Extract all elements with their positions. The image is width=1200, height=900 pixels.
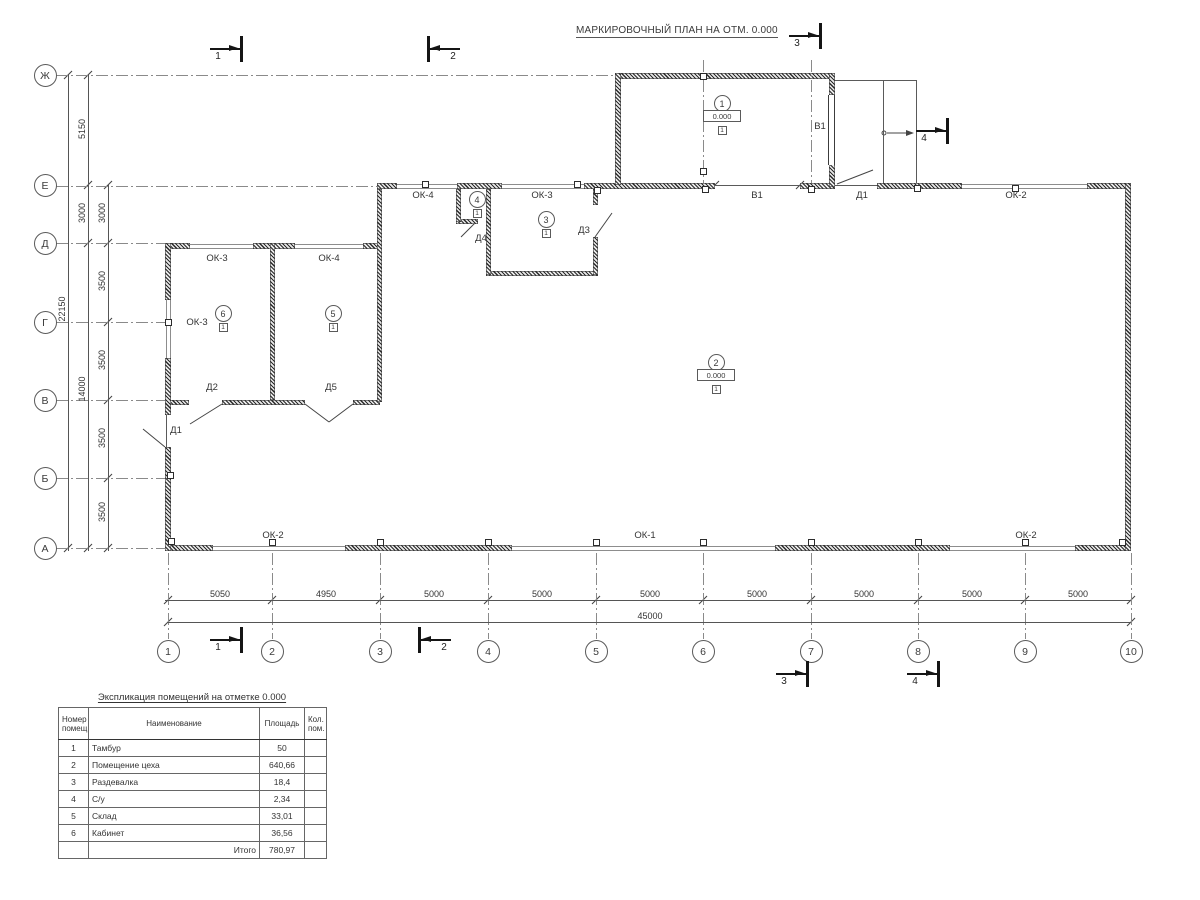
plan-label: В1: [729, 190, 785, 201]
column-symbol: [808, 539, 815, 546]
dimension-text: 5000: [727, 589, 787, 599]
dimension-text: 5150: [77, 99, 87, 159]
plan-label: Д2: [184, 382, 240, 393]
column-symbol: [593, 539, 600, 546]
axis-bubble-col: 6: [692, 640, 715, 663]
window-symbol: [502, 184, 584, 189]
section-marker-arrow: [229, 636, 238, 642]
legend-header-row: Номер помещ. Наименование Площадь Кол. п…: [59, 708, 327, 740]
column-symbol: [422, 181, 429, 188]
axis-bubble-col: 3: [369, 640, 392, 663]
section-marker-arrow: [422, 636, 431, 642]
section-marker-arrow: [808, 32, 817, 38]
axis-gridline: [1025, 553, 1026, 639]
wall-segment: [486, 271, 598, 276]
room-legend: Экспликация помещений на отметке 0.000 Н…: [58, 692, 326, 859]
wall-segment: [377, 189, 382, 402]
axis-gridline: [380, 553, 381, 639]
column-symbol: [700, 539, 707, 546]
axis-bubble-col: 8: [907, 640, 930, 663]
section-marker-arrow: [926, 670, 935, 676]
section-marker-number: 2: [442, 51, 464, 62]
section-marker-bar: [240, 627, 243, 653]
door-leaf: [837, 170, 873, 184]
dimension-line: [68, 75, 69, 551]
section-marker-number: 1: [207, 642, 229, 653]
column-symbol: [168, 538, 175, 545]
room-name-cell: Склад: [89, 808, 260, 825]
axis-gridline: [56, 322, 165, 323]
axis-bubble-col: 1: [157, 640, 180, 663]
wall-segment: [165, 358, 171, 415]
dimension-text: 3500: [97, 251, 107, 311]
dimension-line: [165, 600, 1131, 601]
drawing-element: Номер помещ. Наименование Площадь Кол. п…: [59, 708, 327, 740]
axis-gridline: [56, 400, 165, 401]
axis-bubble-col: 2: [261, 640, 284, 663]
window-symbol: [950, 546, 1075, 551]
axis-bubble-row: Е: [34, 174, 57, 197]
dimension-text: 4950: [296, 589, 356, 599]
room-number-cell: 4: [59, 791, 89, 808]
floor-type-mark: 1: [718, 126, 727, 135]
dimension-text: 5000: [512, 589, 572, 599]
wall-segment: [270, 243, 275, 400]
plan-label: Д3: [556, 225, 612, 236]
room-number-cell: 5: [59, 808, 89, 825]
dimension-text: 22150: [57, 279, 67, 339]
wall-segment: [457, 183, 502, 189]
opening-line: [883, 80, 884, 183]
wall-segment: [345, 545, 512, 551]
room-area-cell: 36,56: [260, 825, 305, 842]
legend-row: 6Кабинет36,56: [59, 825, 327, 842]
column-symbol: [808, 186, 815, 193]
dimension-text: 5050: [190, 589, 250, 599]
axis-bubble-col: 5: [585, 640, 608, 663]
column-symbol: [700, 73, 707, 80]
room-area-cell: 2,34: [260, 791, 305, 808]
wall-segment: [353, 400, 380, 405]
plan-label: Д1: [834, 190, 890, 201]
wall-segment: [1125, 183, 1131, 551]
wall-segment: [165, 545, 213, 551]
plan-label: ОК-2: [998, 530, 1054, 541]
axis-gridline: [272, 553, 273, 639]
total-empty-cell: [59, 842, 89, 859]
opening-line: [835, 80, 917, 81]
axis-gridline: [488, 553, 489, 639]
axis-gridline: [703, 553, 704, 639]
section-marker-number: 3: [786, 38, 808, 49]
section-marker-number: 2: [433, 642, 455, 653]
section-marker-number: 4: [904, 676, 926, 687]
col-header-area: Площадь: [260, 708, 305, 740]
dimension-line: [168, 622, 1131, 623]
room-number-bubble: 4: [469, 191, 486, 208]
axis-bubble-row: А: [34, 537, 57, 560]
wall-segment: [593, 237, 598, 275]
room-count-cell: [305, 757, 327, 774]
section-marker-arrow: [431, 45, 440, 51]
plan-label: ОК-1: [617, 530, 673, 541]
axis-bubble-col: 4: [477, 640, 500, 663]
window-symbol: [166, 300, 171, 358]
wall-segment: [486, 189, 491, 275]
total-count-cell: [305, 842, 327, 859]
elevation-mark: 0.000: [703, 110, 741, 122]
floor-type-mark: 1: [542, 229, 551, 238]
total-value-cell: 780,97: [260, 842, 305, 859]
room-number-bubble: 5: [325, 305, 342, 322]
dimension-text: 3000: [97, 183, 107, 243]
room-number-bubble: 3: [538, 211, 555, 228]
opening-line: [916, 80, 917, 183]
section-marker-arrow: [229, 45, 238, 51]
window-symbol: [295, 244, 363, 249]
wall-segment: [829, 163, 835, 187]
wall-segment: [775, 545, 950, 551]
wall-segment: [615, 73, 835, 79]
window-symbol: [213, 546, 345, 551]
column-symbol: [700, 168, 707, 175]
col-header-name: Наименование: [89, 708, 260, 740]
axis-bubble-row: Б: [34, 467, 57, 490]
wall-segment: [829, 73, 835, 95]
axis-bubble-row: Г: [34, 311, 57, 334]
room-number-cell: 2: [59, 757, 89, 774]
door-leaf: [305, 404, 329, 422]
column-symbol: [574, 181, 581, 188]
room-count-cell: [305, 774, 327, 791]
dimension-text: 5000: [404, 589, 464, 599]
legend-total-row: Итого780,97: [59, 842, 327, 859]
wall-segment: [584, 183, 715, 189]
plan-label: ОК-2: [245, 530, 301, 541]
axis-gridline: [56, 243, 165, 244]
room-count-cell: [305, 808, 327, 825]
room-name-cell: С/у: [89, 791, 260, 808]
room-name-cell: Раздевалка: [89, 774, 260, 791]
wall-segment: [456, 189, 461, 222]
room-name-cell: Тамбур: [89, 740, 260, 757]
axis-gridline: [56, 75, 615, 76]
column-symbol: [485, 539, 492, 546]
plan-label: ОК-4: [301, 253, 357, 264]
drawing-element: 1Тамбур502Помещение цеха640,663Раздевалк…: [59, 740, 327, 859]
axis-gridline: [918, 553, 919, 639]
col-header-count: Кол. пом.: [305, 708, 327, 740]
room-number-cell: 3: [59, 774, 89, 791]
room-area-cell: 50: [260, 740, 305, 757]
legend-row: 5Склад33,01: [59, 808, 327, 825]
section-marker-number: 4: [913, 133, 935, 144]
room-count-cell: [305, 740, 327, 757]
dimension-text: 5000: [834, 589, 894, 599]
section-marker-number: 1: [207, 51, 229, 62]
room-number-bubble: 6: [215, 305, 232, 322]
plan-label: В1: [792, 121, 848, 132]
legend-row: 1Тамбур50: [59, 740, 327, 757]
wall-segment: [165, 243, 171, 300]
dimension-line: [108, 185, 109, 551]
total-label-cell: Итого: [89, 842, 260, 859]
section-marker-arrow: [795, 670, 804, 676]
room-area-cell: 33,01: [260, 808, 305, 825]
column-symbol: [167, 472, 174, 479]
floor-type-mark: 1: [712, 385, 721, 394]
plan-label: Д5: [303, 382, 359, 393]
section-marker-bar: [819, 23, 822, 49]
col-header-room-number: Номер помещ.: [59, 708, 89, 740]
dimension-text: 3500: [97, 330, 107, 390]
room-number-bubble: 1: [714, 95, 731, 112]
legend-row: 2Помещение цеха640,66: [59, 757, 327, 774]
section-marker-bar: [937, 661, 940, 687]
wall-segment: [615, 73, 621, 185]
room-area-cell: 18,4: [260, 774, 305, 791]
axis-bubble-row: Ж: [34, 64, 57, 87]
window-symbol: [962, 184, 1087, 189]
wall-segment: [1075, 545, 1131, 551]
door-leaf: [190, 404, 222, 424]
section-marker-arrow: [935, 127, 944, 133]
wall-segment: [222, 400, 305, 405]
plan-label: ОК-4: [395, 190, 451, 201]
dimension-text: 5000: [942, 589, 1002, 599]
dimension-text: 14000: [77, 359, 87, 419]
dimension-line: [88, 75, 89, 551]
elevation-mark: 0.000: [697, 369, 735, 381]
window-symbol: [190, 244, 253, 249]
plan-label: ОК-3: [514, 190, 570, 201]
column-symbol: [377, 539, 384, 546]
opening-line: [715, 185, 800, 186]
column-symbol: [702, 186, 709, 193]
opening-line: [835, 185, 877, 186]
floor-type-mark: 1: [473, 209, 482, 218]
room-count-cell: [305, 791, 327, 808]
legend-title: Экспликация помещений на отметке 0.000: [58, 692, 326, 703]
legend-row: 3Раздевалка18,4: [59, 774, 327, 791]
legend-table: Номер помещ. Наименование Площадь Кол. п…: [58, 707, 327, 859]
floor-type-mark: 1: [219, 323, 228, 332]
room-number-bubble: 2: [708, 354, 725, 371]
room-area-cell: 640,66: [260, 757, 305, 774]
floor-type-mark: 1: [329, 323, 338, 332]
window-symbol: [512, 546, 775, 551]
room-name-cell: Помещение цеха: [89, 757, 260, 774]
room-name-cell: Кабинет: [89, 825, 260, 842]
column-symbol: [915, 539, 922, 546]
dimension-text: 3000: [77, 183, 87, 243]
dimension-text: 3500: [97, 408, 107, 468]
axis-gridline: [56, 478, 165, 479]
dimension-total-text: 45000: [620, 611, 680, 621]
section-marker-bar: [946, 118, 949, 144]
column-symbol: [914, 185, 921, 192]
dimension-text: 5000: [620, 589, 680, 599]
column-symbol: [594, 187, 601, 194]
section-marker-bar: [240, 36, 243, 62]
plan-label: ОК-2: [988, 190, 1044, 201]
section-marker-number: 3: [773, 676, 795, 687]
room-count-cell: [305, 825, 327, 842]
wall-segment: [165, 447, 171, 551]
dimension-text: 5000: [1048, 589, 1108, 599]
door-leaf: [329, 404, 353, 422]
dimension-text: 3500: [97, 482, 107, 542]
room-number-cell: 6: [59, 825, 89, 842]
axis-bubble-col: 10: [1120, 640, 1143, 663]
section-marker-bar: [806, 661, 809, 687]
axis-bubble-col: 7: [800, 640, 823, 663]
axis-gridline: [168, 553, 169, 639]
plan-label: Д4: [453, 233, 509, 244]
axis-gridline: [1131, 553, 1132, 639]
axis-gridline: [596, 553, 597, 639]
drawing-sheet: МАРКИРОВОЧНЫЙ ПЛАН НА ОТМ. 0.000 ЖЕДГВБА…: [0, 0, 1200, 900]
axis-bubble-col: 9: [1014, 640, 1037, 663]
room-number-cell: 1: [59, 740, 89, 757]
axis-bubble-row: В: [34, 389, 57, 412]
plan-label: Д1: [148, 425, 204, 436]
plan-label: ОК-3: [189, 253, 245, 264]
column-symbol: [1119, 539, 1126, 546]
axis-gridline: [56, 548, 165, 549]
axis-bubble-row: Д: [34, 232, 57, 255]
axis-gridline: [811, 553, 812, 639]
legend-row: 4С/у2,34: [59, 791, 327, 808]
